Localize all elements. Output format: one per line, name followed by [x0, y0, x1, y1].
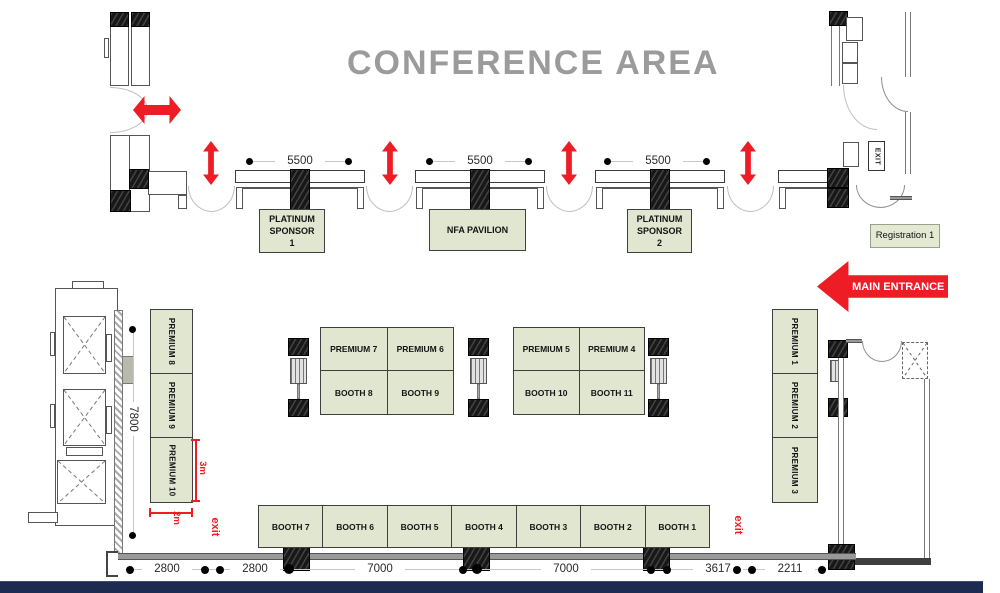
booth-label: BOOTH 11 — [591, 388, 633, 398]
booth-label: PREMIUM 10 — [167, 444, 176, 496]
door-arc — [569, 186, 593, 212]
dimension-dot — [129, 532, 136, 539]
booth-label: BOOTH 2 — [594, 522, 632, 532]
dimension-dot — [604, 158, 611, 165]
dimension-dot — [126, 566, 134, 574]
page-title: CONFERENCE AREA — [347, 44, 720, 83]
pillar — [288, 399, 309, 417]
fixture — [842, 63, 858, 84]
booth-label: PLATINUM SPONSOR 1 — [269, 213, 315, 249]
dimension-label: 7000 — [355, 562, 405, 576]
booth-premium-9: PREMIUM 9 — [150, 373, 193, 438]
dimension-label-3m: 3m — [196, 458, 208, 478]
pillar — [131, 12, 150, 27]
pillar — [129, 169, 149, 189]
dimension-dot — [663, 566, 671, 574]
island-booth-group-right: PREMIUM 5 PREMIUM 4 BOOTH 10 BOOTH 11 — [514, 328, 645, 415]
wall — [846, 339, 862, 343]
dimension-label: 7000 — [541, 562, 591, 576]
door-arc — [366, 186, 390, 212]
booth-label: BOOTH 3 — [530, 522, 568, 532]
exit-label-right: exit — [730, 509, 744, 541]
booth-2: BOOTH 2 — [580, 505, 645, 548]
dimension-label: 5500 — [633, 154, 683, 168]
exit-sign-label: EXIT — [873, 147, 880, 165]
booth-platinum-sponsor-2: PLATINUM SPONSOR 2 — [627, 209, 692, 253]
booth-label: PREMIUM 6 — [397, 344, 444, 354]
elevator-car — [57, 460, 106, 504]
door-arc — [188, 186, 212, 212]
pillar — [288, 338, 309, 356]
dimension-dot — [459, 566, 467, 574]
booth-label: BOOTH 7 — [272, 522, 310, 532]
partition-column — [470, 358, 487, 384]
booth-label: PREMIUM 2 — [791, 382, 800, 429]
registration-desk-label: Registration 1 — [870, 224, 940, 248]
booth-label: PREMIUM 8 — [167, 318, 176, 365]
dimension-dot — [216, 566, 224, 574]
dimension-dot — [246, 158, 253, 165]
dimension-dot — [818, 566, 826, 574]
booth-premium-8: PREMIUM 8 — [150, 309, 193, 374]
booth-platinum-sponsor-1: PLATINUM SPONSOR 1 — [259, 209, 325, 253]
door-arc — [211, 186, 235, 212]
wall — [831, 26, 840, 86]
booth-label: BOOTH 9 — [401, 388, 439, 398]
booth-9: BOOTH 9 — [387, 370, 455, 415]
pillar — [468, 338, 489, 356]
booth-8: BOOTH 8 — [320, 370, 388, 415]
booth-3: BOOTH 3 — [516, 505, 581, 548]
booth-11: BOOTH 11 — [579, 370, 646, 415]
partition-column — [290, 358, 307, 384]
dimension-dot — [733, 566, 741, 574]
wall — [890, 196, 912, 200]
main-entrance-label: MAIN ENTRANCE — [851, 261, 945, 312]
door-arc — [389, 186, 413, 212]
booth-label: PREMIUM 3 — [791, 446, 800, 493]
booth-premium-2: PREMIUM 2 — [772, 373, 818, 438]
pillar — [648, 338, 669, 356]
booth-label: PREMIUM 4 — [588, 344, 635, 354]
dimension-dot — [472, 564, 482, 574]
dimension-dot — [748, 566, 756, 574]
booth-4: BOOTH 4 — [451, 505, 516, 548]
booth-label: BOOTH 4 — [465, 522, 503, 532]
dimension-dot — [201, 566, 209, 574]
booth-label: PREMIUM 9 — [167, 382, 176, 429]
window-x-icon — [903, 343, 927, 378]
elevator-x-icon — [58, 461, 105, 503]
pillar — [828, 340, 848, 358]
booth-premium-3: PREMIUM 3 — [772, 437, 818, 503]
dimension-dot — [703, 158, 710, 165]
exit-sign: EXIT — [868, 141, 885, 171]
elevator-x-icon — [64, 390, 105, 445]
booth-5: BOOTH 5 — [387, 505, 452, 548]
dimension-label-2m: 2m — [170, 508, 182, 528]
booth-premium-1: PREMIUM 1 — [772, 309, 818, 374]
partition-stem — [297, 384, 300, 399]
main-entrance-arrow: MAIN ENTRANCE — [817, 261, 948, 312]
elevator-x-icon — [64, 317, 105, 373]
door-arc — [750, 186, 774, 212]
partition-stem — [477, 384, 480, 399]
exhibition-floor-plan: CONFERENCE AREA — [0, 0, 1000, 593]
dimension-label: 5500 — [275, 154, 325, 168]
door-arc — [843, 85, 877, 130]
booth-label: BOOTH 1 — [658, 522, 696, 532]
booth-premium-7: PREMIUM 7 — [320, 327, 388, 371]
booth-6: BOOTH 6 — [322, 505, 387, 548]
table-leg — [537, 187, 544, 209]
wall — [905, 112, 911, 174]
door-arc — [881, 77, 908, 112]
wall — [838, 358, 844, 558]
pillar — [468, 399, 489, 417]
wall-tick — [104, 38, 109, 58]
booth-row: BOOTH 7 BOOTH 6 BOOTH 5 BOOTH 4 BOOTH 3 … — [258, 505, 710, 548]
door-arc — [546, 186, 570, 212]
booth-premium-6: PREMIUM 6 — [387, 327, 455, 371]
fixture — [846, 17, 863, 41]
booth-1: BOOTH 1 — [645, 505, 710, 548]
pillar — [290, 169, 310, 210]
island-booth-group-left: PREMIUM 7 PREMIUM 6 BOOTH 8 BOOTH 9 — [321, 328, 454, 415]
elevator-car — [63, 316, 106, 374]
booth-premium-4: PREMIUM 4 — [579, 327, 646, 371]
dimension-dot — [647, 566, 655, 574]
wall-tick — [50, 332, 55, 356]
elevator-car — [63, 389, 106, 446]
door-arc — [856, 185, 881, 208]
dimension-tick-red — [191, 508, 193, 517]
dimension-tick-red — [191, 500, 200, 502]
elevator-door-bar — [66, 447, 103, 456]
booth-premium-10: PREMIUM 10 — [150, 437, 193, 503]
pillar — [648, 399, 669, 417]
dimension-dot — [525, 158, 532, 165]
dimension-tick-red — [149, 508, 151, 517]
exit-label-left: exit — [207, 511, 221, 543]
wall — [905, 12, 911, 77]
bench — [28, 512, 58, 523]
pillar — [110, 190, 131, 212]
dimension-dot — [129, 326, 136, 333]
table-leg — [357, 187, 364, 209]
pillar — [827, 188, 849, 208]
dimension-dot — [345, 158, 352, 165]
booth-label: BOOTH 10 — [525, 388, 568, 398]
wall-tick — [50, 404, 55, 428]
bench — [148, 171, 187, 195]
double-arrow-vertical-icon — [740, 141, 756, 185]
booth-premium-5: PREMIUM 5 — [513, 327, 580, 371]
hatched-wall — [114, 310, 123, 558]
fixture — [842, 42, 858, 63]
booth-label: BOOTH 6 — [336, 522, 374, 532]
dimension-label: 7800 — [126, 402, 140, 436]
booth-label: PLATINUM SPONSOR 2 — [637, 213, 683, 249]
partition-stem — [657, 384, 660, 399]
window-box — [902, 342, 928, 379]
booth-label: BOOTH 8 — [335, 388, 373, 398]
dimension-label: 2211 — [765, 562, 815, 576]
dimension-label: 5500 — [455, 154, 505, 168]
dimension-label: 2800 — [142, 562, 192, 576]
dimension-dot — [284, 564, 294, 574]
booth-label: PREMIUM 5 — [523, 344, 570, 354]
table-leg — [717, 187, 724, 209]
partition-column — [650, 358, 667, 384]
pillar — [827, 168, 849, 188]
booth-10: BOOTH 10 — [513, 370, 580, 415]
booth-label: NFA PAVILION — [447, 224, 508, 236]
footer-bar — [0, 581, 983, 593]
booth-label: PREMIUM 7 — [330, 344, 377, 354]
double-arrow-vertical-icon — [382, 141, 398, 185]
elevator-door — [106, 334, 112, 362]
table-leg — [779, 187, 786, 209]
pillar — [470, 169, 490, 210]
dimension-dot — [426, 158, 433, 165]
table-leg — [596, 187, 603, 209]
dimension-label: 2800 — [230, 562, 280, 576]
double-arrow-vertical-icon — [561, 141, 577, 185]
registration-label: Registration 1 — [876, 230, 935, 243]
booth-label: BOOTH 5 — [401, 522, 439, 532]
booth-7: BOOTH 7 — [258, 505, 323, 548]
wall-end-bracket — [106, 551, 118, 577]
booth-label: PREMIUM 1 — [791, 318, 800, 365]
booth-nfa-pavilion: NFA PAVILION — [429, 209, 526, 251]
wall — [924, 379, 930, 561]
table-leg — [416, 187, 423, 209]
pillar — [110, 12, 129, 27]
door-arc — [727, 186, 751, 212]
fixture — [843, 142, 859, 167]
door-arc — [882, 341, 902, 362]
elevator-top-cap — [72, 281, 104, 289]
double-arrow-vertical-icon — [203, 141, 219, 185]
pillar — [650, 169, 670, 210]
door-arc — [862, 341, 882, 362]
dimension-tick-red — [191, 439, 200, 441]
table-leg — [236, 187, 243, 209]
bench-leg — [178, 195, 187, 209]
elevator-door — [106, 406, 112, 434]
